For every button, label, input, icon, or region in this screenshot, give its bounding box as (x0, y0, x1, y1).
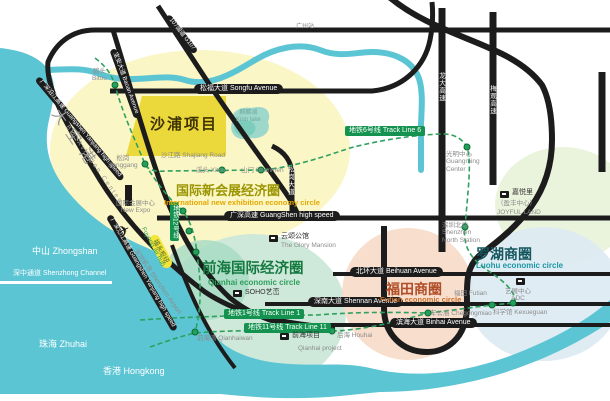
station-label-guangzhou: 广州站 (296, 24, 314, 31)
station-dot-fuyong-1 (186, 228, 192, 234)
road-label-meiguan: 梅观高速 (488, 85, 495, 115)
soho-label: SOHO艺峦 (245, 289, 280, 297)
qianhai-project-label-en: Qianhai project (298, 345, 342, 352)
shapu-project-title: 沙浦项目 (150, 116, 218, 133)
shenzhong-channel-line (0, 281, 112, 284)
luohu-zone-title-cn: 罗湖商圈 (476, 246, 532, 262)
qianhai-zone-title-cn: 前海国际经济圈 (202, 261, 304, 278)
road-label-beihuan: 北环大道 Beihuan Avenue (350, 267, 443, 277)
station-dot-newexpo (180, 208, 186, 214)
adc-icon (516, 278, 525, 285)
futian-zone-title-en: Futian economic circle (380, 296, 461, 305)
shenzhen-projects-map: 松福大道 Songfu Avenue 广深高速 GuangShen high s… (0, 0, 610, 401)
exhibition-zone-title-cn: 国际新会展经济圈 (176, 184, 280, 199)
station-dot-guangming (464, 144, 470, 150)
glory-mansion-label-cn: 云颂公馆 (281, 233, 309, 241)
station-label-bitou: 碧头Bitou (92, 68, 107, 83)
qianhai-zone-title-en: Qianhai economic circle (208, 278, 300, 287)
metro-badge-line12: 地铁12号线 (170, 202, 179, 241)
station-label-xitou: 溪头 Xitou (196, 167, 226, 174)
glory-mansion-label-en: The Glory Mansion (281, 242, 336, 249)
station-label-futian: 福田 Futian (454, 290, 487, 297)
joyful-land-label-en: JOYFUL LAND (497, 209, 541, 216)
road-label-binhai: 滨海大道 Binhai Avenue (390, 318, 477, 328)
station-label-newexpo: 国际会展中心New Expo (116, 200, 155, 215)
station-label-shenzhen-north: 深圳北站ShenzhenNorth Station (442, 222, 480, 244)
road-label-songfu: 松福大道 Songfu Avenue (194, 84, 283, 94)
station-label-chegongmiao: 车公庙 Chegongmiao (430, 310, 492, 317)
shenzhong-channel-label: 深中通道 Shenzhong Channel (13, 270, 106, 278)
station-label-houhai: 后海 Houhai (337, 332, 372, 339)
station-label-shanmen: 山门 Shanmen (241, 167, 284, 174)
qianhai-project-icon (280, 333, 289, 340)
hongkong-label: 香港 Hongkong (103, 366, 165, 376)
glory-mansion-icon (269, 235, 278, 242)
station-label-guangming: 光明中心GuangmingCenter (446, 151, 480, 173)
road-label-songgang-ave: 松岗大道 (286, 166, 293, 196)
station-label-qianhaiwan: 前海湾 Qianhaiwan (197, 335, 253, 342)
soho-icon (233, 290, 242, 297)
zhuhai-label: 珠海 Zhuhai (39, 339, 87, 349)
adc-label: 艺展中心ADC (505, 288, 531, 303)
road-label-longda: 龙大高速 (437, 72, 444, 102)
station-dot-bitou (112, 82, 118, 88)
luohu-zone-title-en: Luohu economic circle (476, 261, 563, 270)
zhongshan-label: 中山 Zhongshan (32, 246, 98, 256)
kirin-lake-label: 麒麟湖Kirin lake (236, 110, 261, 124)
station-label-songgang: 松岗Songgang (108, 155, 138, 170)
metro-badge-line1: 地铁1号线 Track Line 1 (224, 309, 304, 319)
joyful-land-label-cn: 嘉悦里 (512, 189, 533, 197)
joyful-land-icon (500, 191, 509, 198)
joyful-land-label-sub: （盈丰中心） (497, 200, 536, 207)
station-label-kexueguan: 科学馆 Kexueguan (493, 309, 547, 316)
exhibition-zone-title-en: International new exhibition economy cir… (164, 199, 320, 208)
qianhai-project-label-cn: 前海项目 (292, 332, 320, 340)
station-dot-songgang (142, 161, 148, 167)
road-label-shajiang: 沙江路 Shajiang Road (161, 152, 225, 159)
station-dot-fuyong-2 (193, 249, 199, 255)
road-label-guangshen: 广深高速 GuangShen high speed (224, 211, 340, 221)
metro-badge-line6: 地铁6号线 Track Line 6 (345, 126, 425, 136)
station-dot-futian (489, 302, 495, 308)
